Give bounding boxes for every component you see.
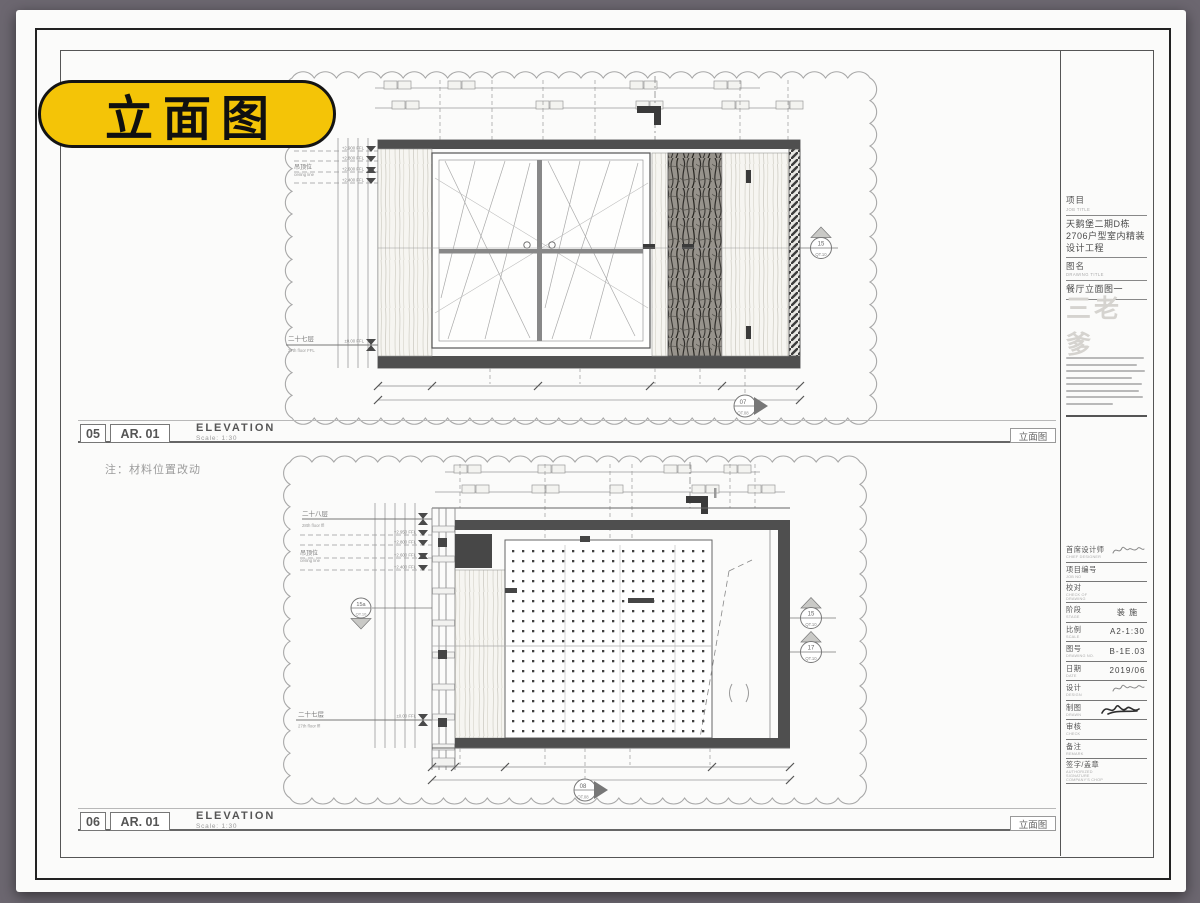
titleblock-field-2: 校对CHECK OF DRAWING [1066,582,1147,603]
drawing-scale: Scale: 1:30 [196,823,237,830]
field-label: 比例 [1066,625,1108,635]
svg-text:17: 17 [808,646,815,652]
svg-text:15: 15 [808,612,815,618]
window-transom [439,249,643,254]
wall-elevation [378,140,800,368]
left-dimension-chains: +2.900 FFL +2.800 FFL +2.600 FFL +2.400 … [286,138,378,368]
svg-text:二十八层: 二十八层 [302,509,329,518]
wood-trim [652,153,668,356]
field-sublabel: CHECK OF DRAWING [1066,593,1108,601]
datum-flag [637,106,661,125]
textured-feature-panel [668,153,722,356]
titleblock-field-10: 备注REMARK [1066,740,1147,760]
svg-text:二十七层: 二十七层 [298,710,325,719]
field-value: A2-1:30 [1108,627,1147,636]
field-label: 项目编号 [1066,565,1108,575]
detail-marker-17: 17 QT.10 [790,632,836,663]
field-label: 设计 [1066,683,1108,693]
field-sublabel: CHECK [1066,732,1108,736]
field-sublabel: STAGE [1066,615,1108,619]
titleblock-field-8: 制图DRAWN [1066,701,1147,721]
svg-text:QT.10: QT.10 [805,622,817,627]
detail-marker-15: 15 QT.10 [800,227,838,259]
revision-note: 注：材料位置改动 [105,461,201,477]
field-value: 装 施 [1108,607,1147,618]
titleblock-field-5: 图号DRAWING NO.B-1E.03 [1066,642,1147,662]
perforated-panel [505,540,712,738]
dark-cabinet-block [455,534,492,568]
field-label: 阶段 [1066,605,1108,615]
field-label: 首席设计师 [1066,545,1108,555]
svg-text:+2.400 FFL: +2.400 FFL [394,565,417,570]
svg-text:QT.10: QT.10 [805,656,817,661]
wood-panel-right [722,153,789,356]
studio-logo: 三老爹 [1066,300,1147,350]
dimension-text-boxes [454,465,775,493]
top-leader-drops [440,80,788,146]
field-sublabel: CHIEF DESIGNER [1066,555,1108,559]
svg-text:+2.900 FFL: +2.900 FFL [342,146,365,151]
title-block: 项目 JOB TITLE 天鹅堡二期D栋2706户型室内精装设计工程 图名 DR… [1060,50,1152,856]
drawing-title: ELEVATION [196,810,275,822]
field-sublabel: REMARK [1066,752,1108,756]
signature-scribble [1111,682,1145,695]
elevation-drawing-05: +2.900 FFL +2.800 FFL +2.600 FFL +2.400 … [280,68,880,430]
field-sublabel: JOB NO [1066,575,1108,579]
field-label: 备注 [1066,742,1108,752]
svg-text:QT.08: QT.08 [577,795,589,800]
wood-panel [455,570,505,738]
svg-text:QT.10: QT.10 [356,612,367,617]
job-title-label: 项目 JOB TITLE [1066,192,1147,216]
svg-text:二十七层: 二十七层 [288,334,315,343]
drawing-ref-box: AR. 01 [110,424,170,443]
titleblock-field-3: 阶段STAGE装 施 [1066,603,1147,623]
titleblock-field-1: 项目编号JOB NO [1066,563,1147,583]
drawing-title: ELEVATION [196,422,275,434]
svg-text:28th floor ffl: 28th floor ffl [302,523,324,528]
svg-text:吊顶位: 吊顶位 [294,163,312,171]
detail-marker-08: 08 QT.08 [574,779,608,801]
field-label: 签字/盖章 [1066,760,1108,770]
window-section-column [432,508,455,770]
svg-text:15: 15 [818,242,825,248]
svg-text:+2.950 FFL: +2.950 FFL [394,530,417,535]
level-markers [418,513,428,726]
drawing-title-label: 图名 DRAWING TITLE [1066,258,1147,282]
field-sublabel-2: COMPANY'S CHOP [1066,778,1108,782]
drawing-title-bar-06: 06 AR. 01 ELEVATION Scale: 1:30 立面图 [78,808,1056,831]
elevation-badge: 立面图 [38,80,336,148]
window [432,153,650,348]
field-label: 审核 [1066,722,1108,732]
svg-text:+2.800 FFL: +2.800 FFL [394,540,417,545]
field-value: B-1E.03 [1108,647,1147,656]
drawing-ref-box: AR. 01 [110,812,170,831]
svg-text:27th floor ffl: 27th floor ffl [298,724,320,729]
field-sublabel: DATE [1066,674,1108,678]
drawing-scale: Scale: 1:30 [196,435,237,442]
drawing-number-box: 06 [80,812,106,831]
detail-marker-15: 15 QT.10 [790,598,836,629]
svg-text:ceiling line: ceiling line [294,172,315,177]
field-sublabel: AUTHORIZED SIGNATURE [1066,770,1108,778]
wall-end-band [778,530,790,740]
floor-band [455,738,790,748]
detail-marker-07: 07 QT.08 [734,395,768,417]
field-label: 图号 [1066,644,1108,654]
signature-scribble [1101,702,1145,717]
svg-text:+2.600 FFL: +2.600 FFL [342,167,365,172]
svg-text:+2.800 FFL: +2.800 FFL [342,156,365,161]
detail-marker-15a: 15a QT.10 [351,598,432,629]
svg-text:+2.600 FFL: +2.600 FFL [394,553,417,558]
field-value: 2019/06 [1108,666,1147,675]
elevation-badge-label: 立面图 [105,79,279,149]
svg-text:±0.00 FFL: ±0.00 FFL [344,339,364,344]
drawing-number-box: 05 [80,424,106,443]
job-title-value: 天鹅堡二期D栋2706户型室内精装设计工程 [1066,216,1147,258]
titleblock-field-9: 审核CHECK [1066,720,1147,740]
titleblock-field-11: 签字/盖章AUTHORIZED SIGNATURECOMPANY'S CHOP [1066,759,1147,784]
field-sublabel: DRAWING NO. [1066,654,1108,658]
svg-text:27th floor FFL: 27th floor FFL [288,348,315,353]
titleblock-field-4: 比例SCALEA2-1:30 [1066,623,1147,643]
elevation-drawing-06: 二十八层 28th floor ffl +2.950 FFL +2.800 FF… [280,448,880,816]
titleblock-field-6: 日期DATE2019/06 [1066,662,1147,682]
field-sublabel: DESIGN [1066,693,1108,697]
floor-band [378,356,800,368]
svg-text:15a: 15a [356,602,366,608]
drawing-title-cn: 立面图 [1010,816,1056,831]
svg-text:07: 07 [740,400,747,406]
field-label: 校对 [1066,583,1108,593]
curtain-panel-left [378,149,432,356]
svg-text:08: 08 [580,784,587,790]
field-label: 日期 [1066,664,1108,674]
drawing-title-bar-05: 05 AR. 01 ELEVATION Scale: 1:30 立面图 [78,420,1056,443]
titleblock-field-0: 首席设计师CHIEF DESIGNER [1066,543,1147,563]
svg-text:ceiling line: ceiling line [300,558,321,563]
ceiling-band [378,140,800,149]
titleblock-field-7: 设计DESIGN [1066,681,1147,701]
svg-text:±0.00 FFL: ±0.00 FFL [396,714,416,719]
level-markers [366,146,376,351]
svg-text:吊顶位: 吊顶位 [300,549,318,557]
ceiling-band [455,520,790,530]
bottom-dimension [428,748,794,784]
signature-scribble [1111,544,1145,557]
wall-elevation [432,508,790,770]
svg-text:+2.400 FFL: +2.400 FFL [342,178,365,183]
wall-section-hatch [789,149,800,356]
field-sublabel: SCALE [1066,635,1108,639]
drawing-title-cn: 立面图 [1010,428,1056,443]
svg-text:QT.10: QT.10 [815,252,827,257]
cad-sheet-viewer: +2.900 FFL +2.800 FFL +2.600 FFL +2.400 … [0,0,1200,903]
title-block-fields: 首席设计师CHIEF DESIGNER项目编号JOB NO校对CHECK OF … [1066,543,1147,784]
svg-text:QT.08: QT.08 [737,411,749,416]
